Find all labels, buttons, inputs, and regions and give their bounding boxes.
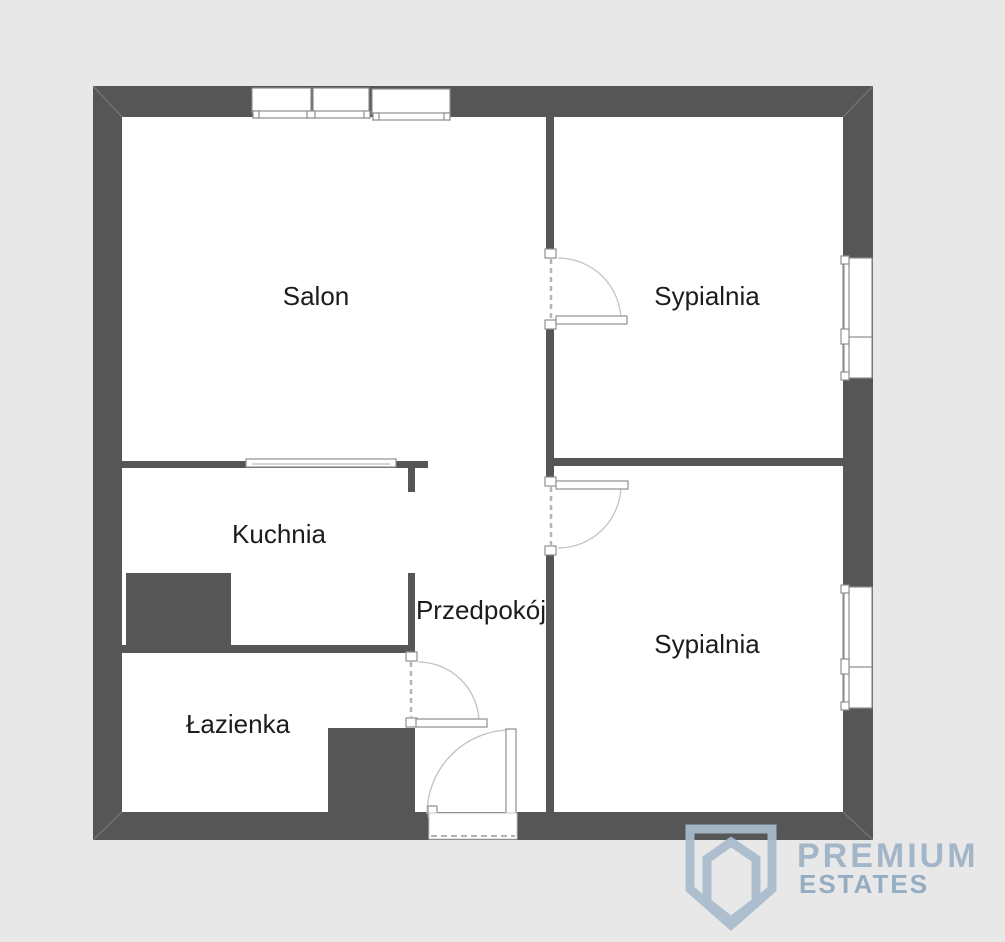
window-jamb-mark bbox=[841, 372, 849, 380]
bathroom-duct-block bbox=[328, 728, 415, 812]
door-leaf-entrance bbox=[506, 729, 516, 817]
window-jamb-mark bbox=[444, 113, 450, 120]
room-label-sypialnia-1: Sypialnia bbox=[654, 281, 760, 311]
outer-wall-top bbox=[93, 86, 873, 117]
door-jamb-mark bbox=[545, 477, 556, 486]
wall-hall-bedrooms-lower bbox=[546, 555, 554, 812]
door-jamb-mark bbox=[545, 546, 556, 555]
logo-text-estates: ESTATES bbox=[799, 869, 929, 899]
window-jamb-mark bbox=[373, 113, 379, 120]
door-leaf-bathroom bbox=[416, 719, 487, 727]
wall-bathroom-top bbox=[122, 645, 415, 653]
door-jamb-mark bbox=[406, 718, 417, 727]
room-label-salon: Salon bbox=[283, 281, 350, 311]
window-jamb-mark bbox=[364, 111, 370, 118]
door-jamb-mark bbox=[545, 320, 556, 329]
door-jamb-mark bbox=[545, 249, 556, 258]
kitchen-duct-block bbox=[126, 573, 231, 649]
window-casement bbox=[372, 89, 450, 114]
room-label-kuchnia: Kuchnia bbox=[232, 519, 326, 549]
wall-hall-bedrooms-middle bbox=[546, 328, 554, 478]
wall-between-bedrooms bbox=[554, 458, 843, 466]
window-glass-line bbox=[844, 261, 849, 375]
window-sill bbox=[373, 113, 450, 120]
window-bedroom-2 bbox=[841, 585, 872, 710]
passthrough-frame bbox=[246, 459, 396, 467]
room-label-sypialnia-2: Sypialnia bbox=[654, 629, 760, 659]
window-casement bbox=[252, 88, 311, 112]
window-kitchen-passthrough bbox=[246, 459, 396, 467]
window-jamb-mark bbox=[841, 659, 849, 674]
door-leaf-bedroom-2 bbox=[556, 481, 628, 489]
wall-hall-bedrooms-upper bbox=[546, 117, 554, 250]
room-label-lazienka: Łazienka bbox=[186, 709, 291, 739]
outer-wall-right bbox=[843, 86, 873, 840]
door-jamb-mark bbox=[406, 652, 417, 661]
window-jamb-mark bbox=[307, 111, 315, 118]
floorplan-page: Salon Sypialnia Sypialnia Kuchnia Przedp… bbox=[0, 0, 1005, 942]
room-label-przedpokoj: Przedpokój bbox=[416, 595, 546, 625]
window-glass-line bbox=[844, 590, 849, 705]
door-leaf-bedroom-1 bbox=[556, 316, 627, 324]
window-bedroom-1 bbox=[841, 256, 872, 380]
window-jamb-mark bbox=[841, 329, 849, 344]
window-jamb-mark bbox=[841, 702, 849, 710]
wall-kitchen-hall bbox=[408, 573, 415, 647]
outer-wall-left bbox=[93, 86, 122, 840]
window-casement bbox=[313, 88, 369, 112]
wall-kitchen-doorway-stub bbox=[408, 468, 415, 492]
floorplan-svg: Salon Sypialnia Sypialnia Kuchnia Przedp… bbox=[0, 0, 1005, 942]
window-salon bbox=[252, 88, 450, 120]
entrance-threshold bbox=[429, 813, 517, 839]
threshold-slab bbox=[429, 813, 517, 839]
window-jamb-mark bbox=[841, 256, 849, 264]
window-jamb-mark bbox=[841, 585, 849, 593]
window-jamb-mark bbox=[253, 111, 259, 118]
